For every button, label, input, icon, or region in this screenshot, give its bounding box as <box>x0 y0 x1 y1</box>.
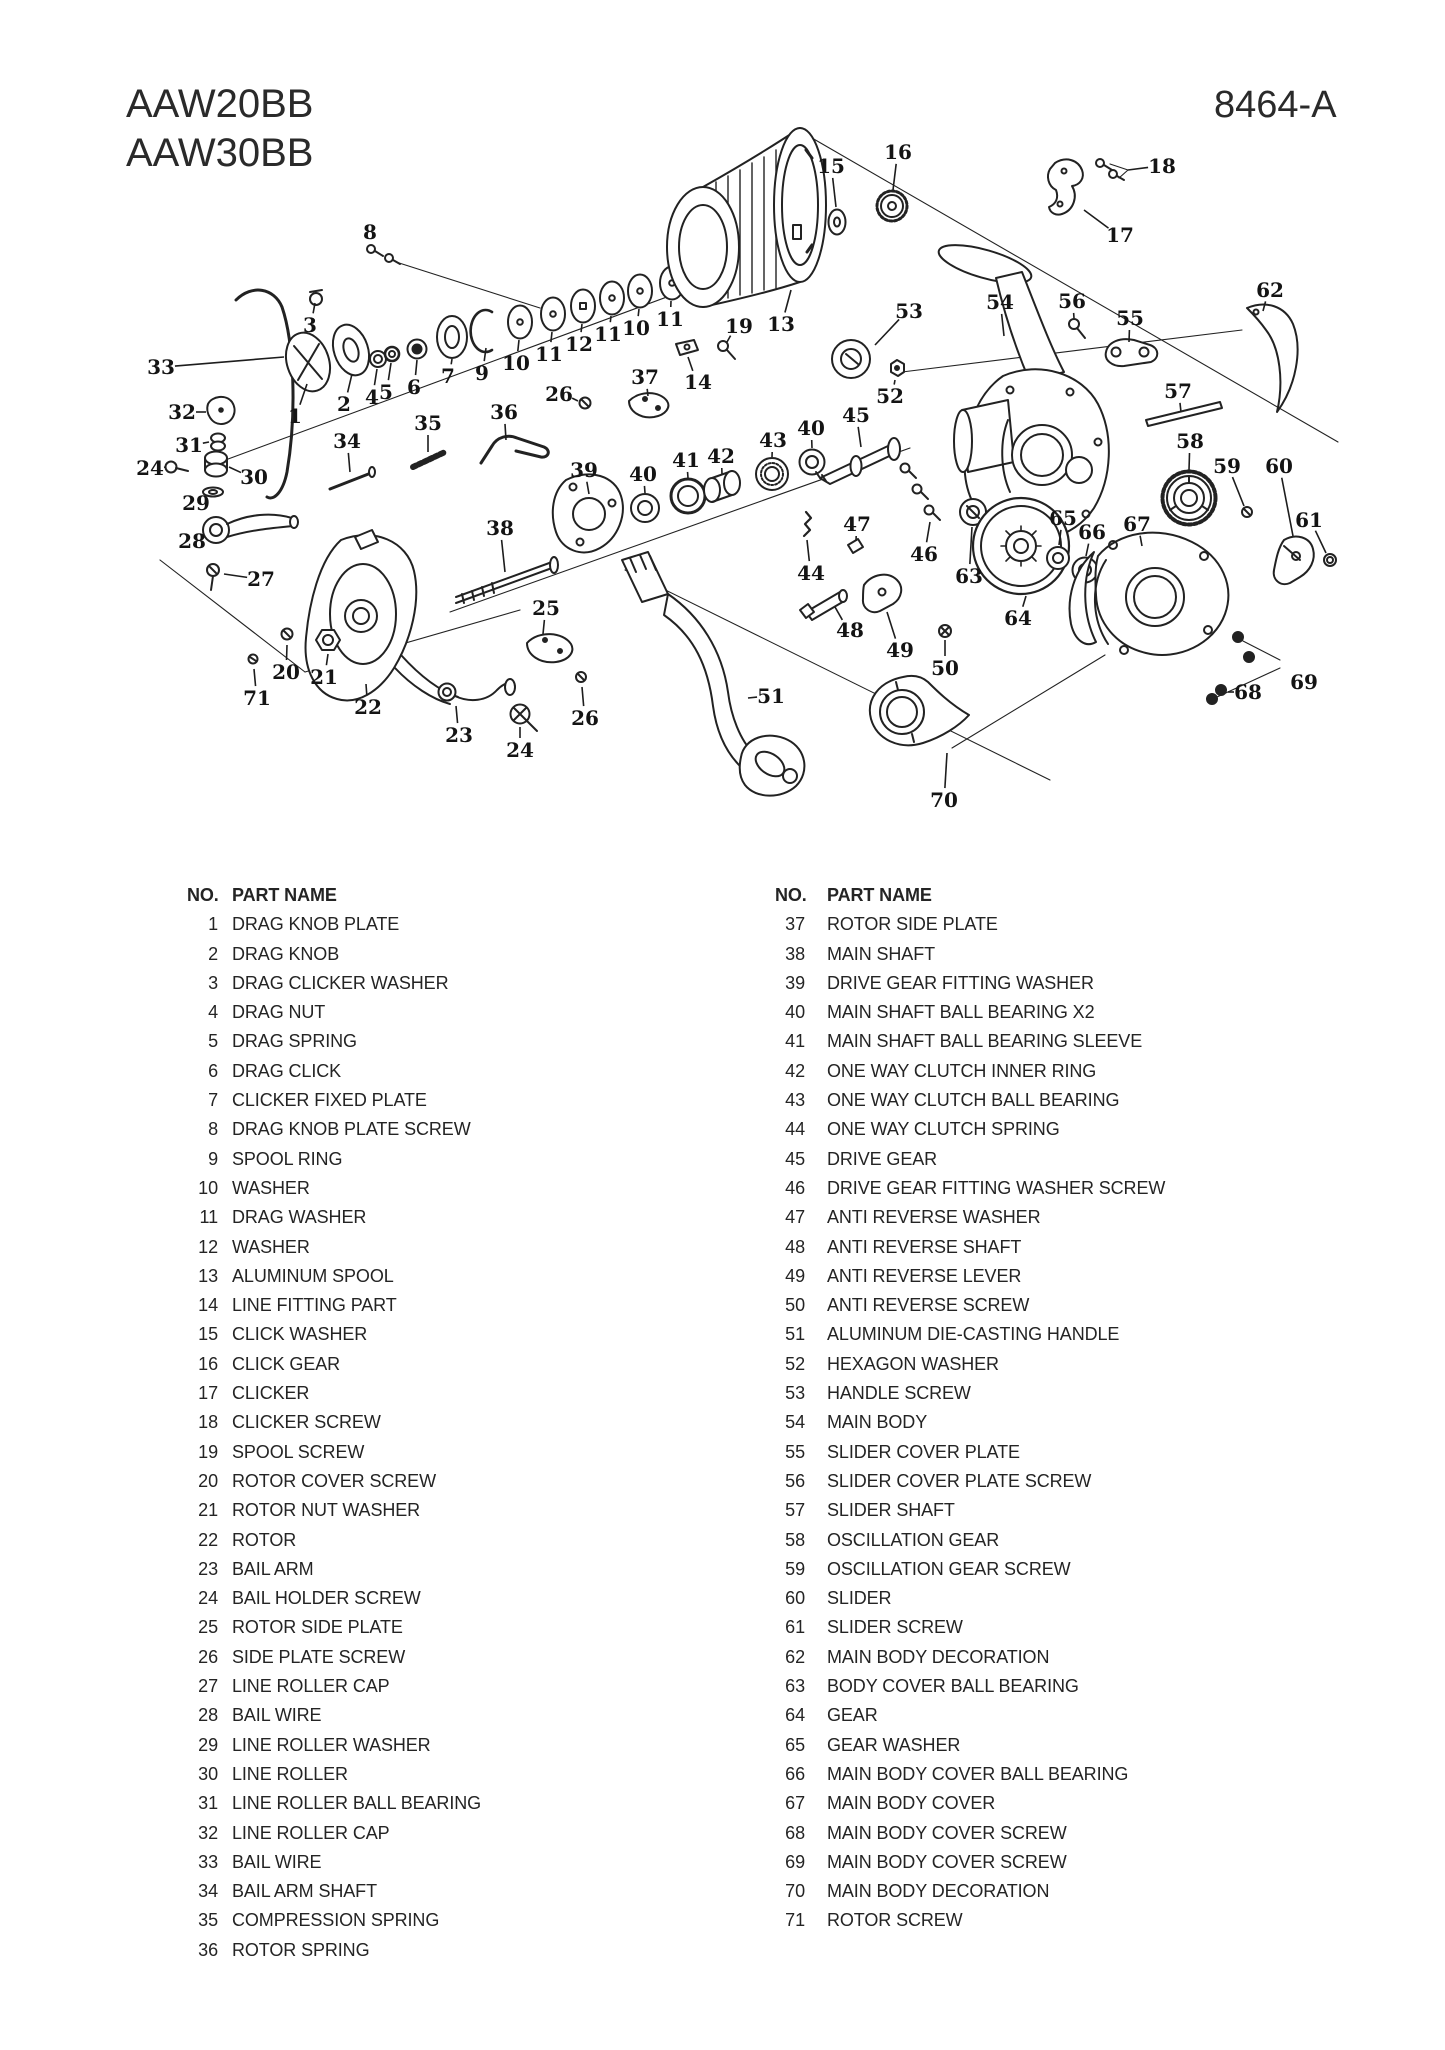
part-row: 47ANTI REVERSE WASHER <box>775 1203 1335 1232</box>
part-row: 58OSCILLATION GEAR <box>775 1526 1335 1555</box>
part-row: 54MAIN BODY <box>775 1408 1335 1437</box>
part-name: BAIL WIRE <box>232 1848 321 1877</box>
part-number-label: 38 <box>486 516 514 540</box>
part-no: 43 <box>775 1086 805 1115</box>
part-number-label: 69 <box>1290 670 1318 694</box>
part-no: 5 <box>187 1027 218 1056</box>
part-no: 58 <box>775 1526 805 1555</box>
part-no: 52 <box>775 1350 805 1379</box>
part-name: MAIN SHAFT BALL BEARING X2 <box>827 998 1094 1027</box>
part-number-label: 70 <box>930 788 958 812</box>
part-number-label: 11 <box>535 342 563 366</box>
leader-line <box>348 374 352 392</box>
leader-line <box>1086 544 1089 556</box>
part-name: ROTOR SIDE PLATE <box>232 1613 403 1642</box>
part-number-label: 67 <box>1123 512 1151 536</box>
part-number-label: 37 <box>631 365 659 389</box>
part-row: 15CLICK WASHER <box>187 1320 747 1349</box>
part-row: 49ANTI REVERSE LEVER <box>775 1262 1335 1291</box>
part-name: OSCILLATION GEAR <box>827 1526 999 1555</box>
handle-art <box>622 552 804 796</box>
part-name: DRAG NUT <box>232 998 325 1027</box>
part-number-label: 28 <box>178 529 206 553</box>
leader-line <box>581 324 582 332</box>
leader-line <box>572 398 578 401</box>
part-number-label: 2 <box>337 392 351 416</box>
part-row: 61SLIDER SCREW <box>775 1613 1335 1642</box>
leader-line <box>502 540 505 572</box>
part-row: 46DRIVE GEAR FITTING WASHER SCREW <box>775 1174 1335 1203</box>
part-number-label: 64 <box>1004 606 1032 630</box>
part-row: 57SLIDER SHAFT <box>775 1496 1335 1525</box>
leader-line <box>807 540 809 561</box>
part-no: 38 <box>775 940 805 969</box>
part-number-label: 56 <box>1058 289 1086 313</box>
leader-line <box>224 574 247 577</box>
part-no: 45 <box>775 1145 805 1174</box>
part-number-label: 60 <box>1265 454 1293 478</box>
part-no: 55 <box>775 1438 805 1467</box>
part-no: 56 <box>775 1467 805 1496</box>
part-no: 71 <box>775 1906 805 1935</box>
body-decoration-art <box>870 676 969 745</box>
part-no: 3 <box>187 969 218 998</box>
part-number-label: 21 <box>310 665 338 689</box>
part-name: DRIVE GEAR FITTING WASHER <box>827 969 1094 998</box>
leader-line <box>416 360 417 375</box>
part-no: 57 <box>775 1496 805 1525</box>
part-no: 30 <box>187 1760 218 1789</box>
part-number-label: 4 <box>365 385 379 409</box>
leader-line <box>927 522 930 542</box>
part-name: ONE WAY CLUTCH SPRING <box>827 1115 1060 1144</box>
part-no: 20 <box>187 1467 218 1496</box>
parts-list-header: NO.PART NAME <box>775 881 1335 910</box>
part-row: 7CLICKER FIXED PLATE <box>187 1086 747 1115</box>
part-number-label: 71 <box>243 686 271 710</box>
part-name: MAIN BODY COVER SCREW <box>827 1819 1067 1848</box>
part-row: 53HANDLE SCREW <box>775 1379 1335 1408</box>
part-name: ROTOR SCREW <box>827 1906 963 1935</box>
part-number-label: 45 <box>842 403 870 427</box>
part-row: 10WASHER <box>187 1174 747 1203</box>
part-row: 52HEXAGON WASHER <box>775 1350 1335 1379</box>
leader-line <box>484 348 486 361</box>
part-name: LINE ROLLER WASHER <box>232 1731 431 1760</box>
part-name: COMPRESSION SPRING <box>232 1906 439 1935</box>
part-row: 8DRAG KNOB PLATE SCREW <box>187 1115 747 1144</box>
handle-screw-art <box>832 340 904 378</box>
part-number-label: 62 <box>1256 278 1284 302</box>
part-name: GEAR WASHER <box>827 1731 960 1760</box>
part-no: 18 <box>187 1408 218 1437</box>
part-row: 67MAIN BODY COVER <box>775 1789 1335 1818</box>
part-name: ONE WAY CLUTCH BALL BEARING <box>827 1086 1119 1115</box>
part-number-label: 33 <box>147 355 175 379</box>
part-row: 23BAIL ARM <box>187 1555 747 1584</box>
part-number-label: 26 <box>571 706 599 730</box>
part-name: MAIN BODY <box>827 1408 927 1437</box>
part-number-label: 63 <box>955 564 983 588</box>
part-number-label: 46 <box>910 542 938 566</box>
part-no: 16 <box>187 1350 218 1379</box>
part-row: 34BAIL ARM SHAFT <box>187 1877 747 1906</box>
part-row: 6DRAG CLICK <box>187 1057 747 1086</box>
part-name: ANTI REVERSE WASHER <box>827 1203 1040 1232</box>
part-name: DRAG KNOB PLATE <box>232 910 399 939</box>
part-row: 56SLIDER COVER PLATE SCREW <box>775 1467 1335 1496</box>
part-name: DRAG CLICK <box>232 1057 341 1086</box>
part-name: LINE ROLLER <box>232 1760 348 1789</box>
part-row: 17CLICKER <box>187 1379 747 1408</box>
part-no: 50 <box>775 1291 805 1320</box>
part-name: ROTOR SIDE PLATE <box>827 910 998 939</box>
part-name: ANTI REVERSE LEVER <box>827 1262 1021 1291</box>
leader-line <box>647 389 648 396</box>
part-no: 35 <box>187 1906 218 1935</box>
part-name: DRAG SPRING <box>232 1027 357 1056</box>
header-part-name: PART NAME <box>232 881 337 910</box>
part-name: MAIN BODY COVER SCREW <box>827 1848 1067 1877</box>
spool-art <box>667 128 907 307</box>
part-no: 66 <box>775 1760 805 1789</box>
part-no: 48 <box>775 1233 805 1262</box>
header-no: NO. <box>775 881 805 910</box>
leader-line <box>1002 314 1004 336</box>
part-number-label: 5 <box>379 380 393 404</box>
leader-line <box>505 424 506 440</box>
leader-line <box>1180 403 1181 412</box>
part-number-label: 8 <box>363 220 377 244</box>
part-row: 39DRIVE GEAR FITTING WASHER <box>775 969 1335 998</box>
part-row: 24BAIL HOLDER SCREW <box>187 1584 747 1613</box>
rotor-art <box>249 530 587 731</box>
part-no: 1 <box>187 910 218 939</box>
part-no: 23 <box>187 1555 218 1584</box>
part-row: 38MAIN SHAFT <box>775 940 1335 969</box>
part-row: 70MAIN BODY DECORATION <box>775 1877 1335 1906</box>
part-name: SIDE PLATE SCREW <box>232 1643 405 1672</box>
leader-line <box>887 612 895 639</box>
part-number-label: 53 <box>895 299 923 323</box>
part-no: 34 <box>187 1877 218 1906</box>
part-number-label: 66 <box>1078 520 1106 544</box>
part-number-label: 48 <box>836 618 864 642</box>
part-number-label: 17 <box>1106 223 1134 247</box>
leader-line <box>388 363 391 380</box>
leader-line <box>875 319 899 345</box>
part-number-label: 43 <box>759 428 787 452</box>
part-no: 32 <box>187 1819 218 1848</box>
part-number-label: 20 <box>272 660 300 684</box>
part-row: 31LINE ROLLER BALL BEARING <box>187 1789 747 1818</box>
part-no: 17 <box>187 1379 218 1408</box>
part-row: 33BAIL WIRE <box>187 1848 747 1877</box>
part-number-label: 11 <box>656 307 684 331</box>
part-name: ALUMINUM SPOOL <box>232 1262 394 1291</box>
leader-line <box>175 357 284 366</box>
part-no: 14 <box>187 1291 218 1320</box>
part-row: 19SPOOL SCREW <box>187 1438 747 1467</box>
part-row: 43ONE WAY CLUTCH BALL BEARING <box>775 1086 1335 1115</box>
part-number-label: 35 <box>414 411 442 435</box>
leader-line <box>1128 167 1148 170</box>
part-name: ONE WAY CLUTCH INNER RING <box>827 1057 1096 1086</box>
part-no: 33 <box>187 1848 218 1877</box>
leader-line <box>348 453 350 472</box>
part-no: 42 <box>775 1057 805 1086</box>
part-row: 60SLIDER <box>775 1584 1335 1613</box>
part-no: 15 <box>187 1320 218 1349</box>
main-body-art <box>935 237 1109 539</box>
part-number-label: 15 <box>817 154 845 178</box>
part-no: 65 <box>775 1731 805 1760</box>
part-no: 19 <box>187 1438 218 1467</box>
part-no: 62 <box>775 1643 805 1672</box>
part-number-label: 42 <box>707 444 735 468</box>
part-row: 26SIDE PLATE SCREW <box>187 1643 747 1672</box>
part-row: 55SLIDER COVER PLATE <box>775 1438 1335 1467</box>
leader-line <box>970 527 972 564</box>
part-number-label: 65 <box>1049 506 1077 530</box>
part-no: 59 <box>775 1555 805 1584</box>
part-no: 63 <box>775 1672 805 1701</box>
leader-line <box>945 753 947 788</box>
part-no: 68 <box>775 1819 805 1848</box>
part-name: SPOOL SCREW <box>232 1438 364 1467</box>
part-row: 69MAIN BODY COVER SCREW <box>775 1848 1335 1877</box>
part-no: 26 <box>187 1643 218 1672</box>
part-row: 63BODY COVER BALL BEARING <box>775 1672 1335 1701</box>
main-body-cover-art <box>1070 533 1254 704</box>
part-number-label: 51 <box>757 684 785 708</box>
part-number-label: 3 <box>303 313 317 337</box>
part-name: BAIL ARM SHAFT <box>232 1877 377 1906</box>
part-row: 45DRIVE GEAR <box>775 1145 1335 1174</box>
part-name: LINE ROLLER CAP <box>232 1672 390 1701</box>
part-row: 20ROTOR COVER SCREW <box>187 1467 747 1496</box>
part-number-label: 29 <box>182 491 210 515</box>
part-number-label: 40 <box>629 462 657 486</box>
part-no: 8 <box>187 1115 218 1144</box>
part-name: SPOOL RING <box>232 1145 342 1174</box>
part-row: 42ONE WAY CLUTCH INNER RING <box>775 1057 1335 1086</box>
part-name: SLIDER COVER PLATE <box>827 1438 1020 1467</box>
part-name: GEAR <box>827 1701 878 1730</box>
part-number-label: 32 <box>168 400 196 424</box>
leader-line <box>456 706 458 723</box>
part-number-label: 54 <box>986 290 1014 314</box>
parts-list-left-column: NO.PART NAME1DRAG KNOB PLATE2DRAG KNOB3D… <box>187 881 747 1965</box>
part-number-label: 10 <box>622 316 650 340</box>
part-no: 54 <box>775 1408 805 1437</box>
part-name: WASHER <box>232 1233 310 1262</box>
part-no: 67 <box>775 1789 805 1818</box>
part-number-label: 24 <box>136 456 164 480</box>
part-number-label: 34 <box>333 429 361 453</box>
part-number-label: 50 <box>931 656 959 680</box>
part-no: 61 <box>775 1613 805 1642</box>
part-row: 64GEAR <box>775 1701 1335 1730</box>
parts-catalog-page: AAW20BB AAW30BB 8464-A <box>0 0 1445 2050</box>
part-no: 21 <box>187 1496 218 1525</box>
part-no: 70 <box>775 1877 805 1906</box>
part-no: 22 <box>187 1526 218 1555</box>
part-no: 11 <box>187 1203 218 1232</box>
part-name: ROTOR SPRING <box>232 1936 369 1965</box>
part-number-label: 31 <box>175 433 203 457</box>
leader-line <box>1084 210 1109 228</box>
parts-list-header: NO.PART NAME <box>187 881 747 910</box>
leader-line <box>644 486 645 493</box>
part-row: 51ALUMINUM DIE-CASTING HANDLE <box>775 1320 1335 1349</box>
part-number-label: 6 <box>407 375 421 399</box>
part-number-label: 40 <box>797 416 825 440</box>
leader-line <box>254 669 256 686</box>
part-name: MAIN BODY DECORATION <box>827 1877 1049 1906</box>
part-row: 22ROTOR <box>187 1526 747 1555</box>
part-number-label: 24 <box>506 738 534 762</box>
part-name: BAIL WIRE <box>232 1701 321 1730</box>
part-row: 4DRAG NUT <box>187 998 747 1027</box>
part-name: SLIDER SCREW <box>827 1613 963 1642</box>
part-row: 71ROTOR SCREW <box>775 1906 1335 1935</box>
part-no: 44 <box>775 1115 805 1144</box>
part-number-label: 23 <box>445 723 473 747</box>
part-row: 16CLICK GEAR <box>187 1350 747 1379</box>
part-row: 30LINE ROLLER <box>187 1760 747 1789</box>
leader-line <box>688 357 693 371</box>
part-number-label: 68 <box>1234 680 1262 704</box>
part-number-label: 25 <box>532 596 560 620</box>
part-no: 49 <box>775 1262 805 1291</box>
part-number-label: 41 <box>672 448 700 472</box>
part-number-label: 30 <box>240 465 268 489</box>
part-row: 29LINE ROLLER WASHER <box>187 1731 747 1760</box>
part-number-label: 1 <box>288 404 302 428</box>
part-number-label: 27 <box>247 567 275 591</box>
part-name: HEXAGON WASHER <box>827 1350 999 1379</box>
leader-line <box>833 178 836 207</box>
part-name: SLIDER <box>827 1584 891 1613</box>
part-number-label: 52 <box>876 384 904 408</box>
part-no: 13 <box>187 1262 218 1291</box>
part-no: 9 <box>187 1145 218 1174</box>
part-name: ROTOR NUT WASHER <box>232 1496 420 1525</box>
part-row: 28BAIL WIRE <box>187 1701 747 1730</box>
part-number-label: 11 <box>594 322 622 346</box>
leader-line <box>858 427 861 447</box>
part-row: 32LINE ROLLER CAP <box>187 1819 747 1848</box>
part-name: WASHER <box>232 1174 310 1203</box>
part-number-label: 12 <box>565 332 593 356</box>
part-name: ROTOR <box>232 1526 296 1555</box>
part-number-label: 18 <box>1148 154 1176 178</box>
part-number-label: 26 <box>545 382 573 406</box>
part-name: LINE ROLLER BALL BEARING <box>232 1789 481 1818</box>
part-no: 47 <box>775 1203 805 1232</box>
leader-line <box>785 290 791 312</box>
part-number-label: 47 <box>843 512 871 536</box>
header-no: NO. <box>187 881 218 910</box>
part-no: 64 <box>775 1701 805 1730</box>
part-row: 21ROTOR NUT WASHER <box>187 1496 747 1525</box>
part-no: 60 <box>775 1584 805 1613</box>
leader-line <box>1189 453 1190 470</box>
part-no: 25 <box>187 1613 218 1642</box>
part-name: BODY COVER BALL BEARING <box>827 1672 1079 1701</box>
part-no: 7 <box>187 1086 218 1115</box>
part-name: ANTI REVERSE SCREW <box>827 1291 1029 1320</box>
part-row: 1DRAG KNOB PLATE <box>187 910 747 939</box>
part-name: CLICKER <box>232 1379 309 1408</box>
part-no: 27 <box>187 1672 218 1701</box>
part-row: 9SPOOL RING <box>187 1145 747 1174</box>
part-no: 24 <box>187 1584 218 1613</box>
part-name: DRAG WASHER <box>232 1203 366 1232</box>
part-row: 18CLICKER SCREW <box>187 1408 747 1437</box>
part-no: 40 <box>775 998 805 1027</box>
leader-line <box>543 620 544 634</box>
part-name: MAIN BODY COVER BALL BEARING <box>827 1760 1128 1789</box>
part-row: 68MAIN BODY COVER SCREW <box>775 1819 1335 1848</box>
leader-line <box>518 340 519 351</box>
part-name: LINE FITTING PART <box>232 1291 397 1320</box>
part-no: 4 <box>187 998 218 1027</box>
part-name: MAIN SHAFT <box>827 940 935 969</box>
part-name: DRAG KNOB PLATE SCREW <box>232 1115 471 1144</box>
part-no: 36 <box>187 1936 218 1965</box>
part-name: ALUMINUM DIE-CASTING HANDLE <box>827 1320 1119 1349</box>
part-no: 10 <box>187 1174 218 1203</box>
part-number-label: 22 <box>354 695 382 719</box>
part-name: MAIN BODY DECORATION <box>827 1643 1049 1672</box>
part-row: 59OSCILLATION GEAR SCREW <box>775 1555 1335 1584</box>
part-row: 27LINE ROLLER CAP <box>187 1672 747 1701</box>
part-number-label: 19 <box>725 314 753 338</box>
part-number-label: 10 <box>502 351 530 375</box>
part-no: 41 <box>775 1027 805 1056</box>
part-row: 62MAIN BODY DECORATION <box>775 1643 1335 1672</box>
part-no: 69 <box>775 1848 805 1877</box>
clicker-art <box>1048 159 1124 215</box>
leader-line <box>582 687 584 706</box>
leader-line <box>366 684 367 695</box>
part-number-label: 59 <box>1213 454 1241 478</box>
part-number-label: 16 <box>884 140 912 164</box>
parts-list-right-column: NO.PART NAME37ROTOR SIDE PLATE38MAIN SHA… <box>775 881 1335 1936</box>
part-number-label: 49 <box>886 638 914 662</box>
part-no: 2 <box>187 940 218 969</box>
part-number-label: 55 <box>1116 306 1144 330</box>
part-row: 11DRAG WASHER <box>187 1203 747 1232</box>
part-row: 3DRAG CLICKER WASHER <box>187 969 747 998</box>
leader-line <box>374 369 377 385</box>
part-number-label: 39 <box>570 458 598 482</box>
drive-gear-art <box>816 438 940 520</box>
part-name: MAIN BODY COVER <box>827 1789 995 1818</box>
part-name: HANDLE SCREW <box>827 1379 971 1408</box>
part-row: 25ROTOR SIDE PLATE <box>187 1613 747 1642</box>
part-name: CLICKER FIXED PLATE <box>232 1086 427 1115</box>
part-row: 44ONE WAY CLUTCH SPRING <box>775 1115 1335 1144</box>
leader-line <box>1315 531 1326 553</box>
part-name: CLICKER SCREW <box>232 1408 381 1437</box>
part-row: 12WASHER <box>187 1233 747 1262</box>
part-row: 48ANTI REVERSE SHAFT <box>775 1233 1335 1262</box>
part-row: 50ANTI REVERSE SCREW <box>775 1291 1335 1320</box>
part-name: DRIVE GEAR FITTING WASHER SCREW <box>827 1174 1165 1203</box>
